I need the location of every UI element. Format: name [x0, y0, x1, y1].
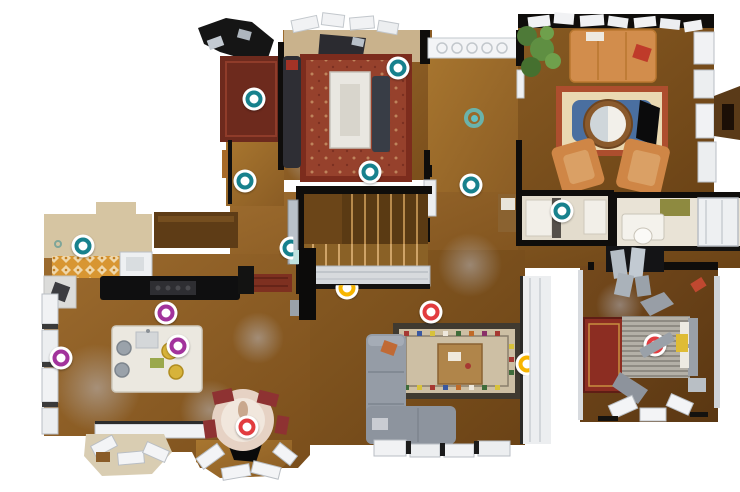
marker-ring: [75, 238, 92, 255]
marker-ring: [423, 304, 440, 321]
sofa-on-rug: [372, 76, 390, 152]
stool-gray: [115, 363, 129, 377]
stool-yellow: [169, 365, 183, 379]
fireplace-wall: [299, 248, 316, 320]
sofa-dark: [283, 56, 301, 168]
scan-point-marker[interactable]: [52, 238, 64, 250]
bath-rug: [660, 199, 690, 216]
kitchen-island: [112, 326, 202, 392]
stair-shelf: [310, 266, 430, 286]
dining-chair: [203, 419, 217, 438]
scan-point-marker[interactable]: [155, 302, 178, 325]
scan-point-marker[interactable]: [167, 335, 190, 358]
scan-point-marker[interactable]: [236, 416, 259, 439]
marker-ring: [390, 60, 407, 77]
marker-ring: [237, 173, 254, 190]
yellow-pillow: [676, 334, 688, 352]
scan-point-marker[interactable]: [644, 334, 667, 357]
scan-point-marker[interactable]: [359, 161, 382, 184]
east-windows: [694, 32, 740, 182]
family-coffee-table: [438, 344, 482, 384]
scan-point-marker[interactable]: [50, 347, 73, 370]
scan-point-marker[interactable]: [551, 200, 574, 223]
marker-ring: [647, 337, 664, 354]
current-position-marker[interactable]: [464, 108, 484, 128]
room-living: [283, 13, 430, 206]
marker-ring: [246, 91, 263, 108]
scan-point-marker[interactable]: [234, 170, 257, 193]
scan-point-marker[interactable]: [243, 88, 266, 111]
scan-point-marker[interactable]: [460, 174, 483, 197]
southwest-bay: [84, 434, 172, 476]
stool-gray: [117, 341, 131, 355]
floorplan-viewport: [0, 0, 740, 492]
bathroom: [612, 193, 740, 251]
headboard: [688, 318, 698, 376]
marker-ring: [554, 203, 571, 220]
marker-ring: [158, 305, 175, 322]
shower: [698, 198, 738, 246]
scan-hole: [636, 100, 660, 146]
scan-point-marker[interactable]: [72, 235, 95, 258]
marker-ring: [362, 164, 379, 181]
floorplan-view[interactable]: [0, 0, 740, 492]
kitchen-tile-floor: [52, 256, 120, 278]
marker-ring: [54, 240, 62, 248]
toilet: [634, 228, 652, 244]
scan-point-marker[interactable]: [420, 301, 443, 324]
marker-ring: [170, 338, 187, 355]
scan-point-marker[interactable]: [387, 57, 410, 80]
marker-dot: [471, 115, 478, 122]
marker-ring: [239, 419, 256, 436]
marker-ring: [463, 177, 480, 194]
staircase: [296, 186, 432, 294]
marker-ring: [53, 350, 70, 367]
